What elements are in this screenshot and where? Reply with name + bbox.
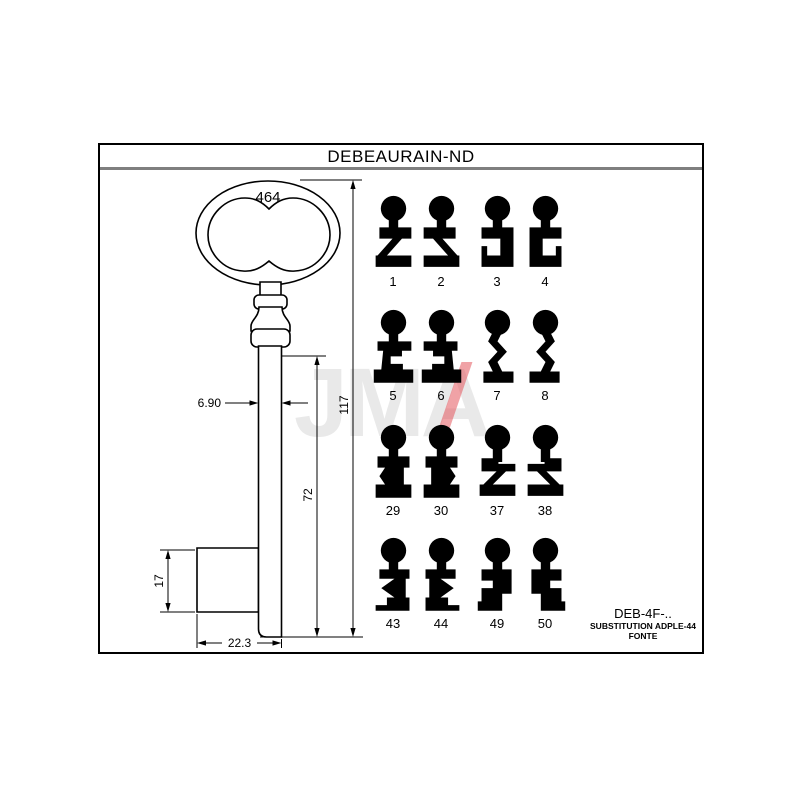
key-profile-number: 6	[418, 389, 465, 402]
key-profile-icon	[522, 192, 569, 274]
key-profile-icon	[370, 192, 417, 274]
dim-bow-ref: 464	[255, 189, 280, 206]
key-profile-cell: 38	[522, 421, 569, 517]
key-profile-number: 44	[418, 617, 465, 630]
key-profile-number: 8	[522, 389, 569, 402]
reference-code: DEB-4F-..	[583, 606, 703, 621]
substitution-note: SUBSTITUTION ADPLE-44	[583, 621, 703, 631]
page-title: DEBEAURAIN-ND	[100, 145, 702, 167]
title-band: DEBEAURAIN-ND	[100, 145, 702, 170]
dim-72-arrow-up	[314, 356, 319, 365]
dim-117-arrow-down	[350, 628, 355, 637]
reference-block: DEB-4F-.. SUBSTITUTION ADPLE-44 FONTE	[583, 606, 703, 641]
key-profile-cell: 1	[370, 192, 417, 288]
key-profile-number: 4	[522, 275, 569, 288]
dim-690-arrow-right	[250, 400, 259, 405]
key-profile-icon	[522, 421, 569, 503]
key-profile-icon	[370, 421, 417, 503]
key-profile-icon	[474, 192, 521, 274]
key-bow-inner-peanut	[208, 198, 330, 271]
dim-17-arrow-down	[165, 603, 170, 612]
key-profile-number: 29	[370, 504, 417, 517]
key-profile-icon	[522, 534, 569, 616]
key-profile-icon	[370, 306, 417, 388]
key-profile-cell: 7	[474, 306, 521, 402]
dim-17-text: 17	[152, 574, 166, 588]
key-profile-cell: 43	[370, 534, 417, 630]
dim-223-arrow-right	[273, 640, 282, 645]
dim-72-text: 72	[301, 488, 315, 502]
dim-72-arrow-down	[314, 628, 319, 637]
key-profile-cell: 50	[522, 534, 569, 630]
dim-117-arrow-up	[350, 180, 355, 189]
key-profile-number: 1	[370, 275, 417, 288]
key-profile-number: 2	[418, 275, 465, 288]
key-profile-number: 37	[474, 504, 521, 517]
key-profile-cell: 30	[418, 421, 465, 517]
key-profile-cell: 8	[522, 306, 569, 402]
key-profile-cell: 4	[522, 192, 569, 288]
key-profile-cell: 3	[474, 192, 521, 288]
key-profile-icon	[522, 306, 569, 388]
key-drawing: 464 117 72 6.90 17 22.3	[100, 170, 390, 660]
dim-690-arrow-left	[282, 400, 291, 405]
key-profile-icon	[370, 534, 417, 616]
key-profile-cell: 6	[418, 306, 465, 402]
key-profile-number: 7	[474, 389, 521, 402]
key-profile-icon	[418, 192, 465, 274]
key-bit-blank	[197, 548, 259, 612]
key-neck-vase	[251, 307, 290, 331]
key-profile-icon	[418, 421, 465, 503]
key-profile-number: 3	[474, 275, 521, 288]
dim-17-arrow-up	[165, 550, 170, 559]
catalog-page: { "title": "DEBEAURAIN-ND", "watermark":…	[0, 0, 800, 800]
key-profile-icon	[474, 306, 521, 388]
material-note: FONTE	[583, 631, 703, 641]
key-profile-number: 50	[522, 617, 569, 630]
key-profile-cell: 5	[370, 306, 417, 402]
key-profile-icon	[474, 534, 521, 616]
key-profile-icon	[474, 421, 521, 503]
dim-117-text: 117	[337, 395, 351, 414]
key-shaft	[259, 346, 282, 637]
key-neck-ring2	[251, 329, 290, 347]
key-profile-cell: 44	[418, 534, 465, 630]
key-profile-number: 43	[370, 617, 417, 630]
key-profile-number: 38	[522, 504, 569, 517]
key-profile-icon	[418, 306, 465, 388]
dim-223-text: 22.3	[228, 636, 252, 650]
key-profile-number: 30	[418, 504, 465, 517]
key-profile-cell: 37	[474, 421, 521, 517]
dim-690-text: 6.90	[198, 396, 222, 410]
key-profile-number: 49	[474, 617, 521, 630]
dim-223-arrow-left	[197, 640, 206, 645]
key-profile-cell: 2	[418, 192, 465, 288]
key-profile-icon	[418, 534, 465, 616]
key-profile-cell: 49	[474, 534, 521, 630]
key-profile-cell: 29	[370, 421, 417, 517]
key-profile-number: 5	[370, 389, 417, 402]
